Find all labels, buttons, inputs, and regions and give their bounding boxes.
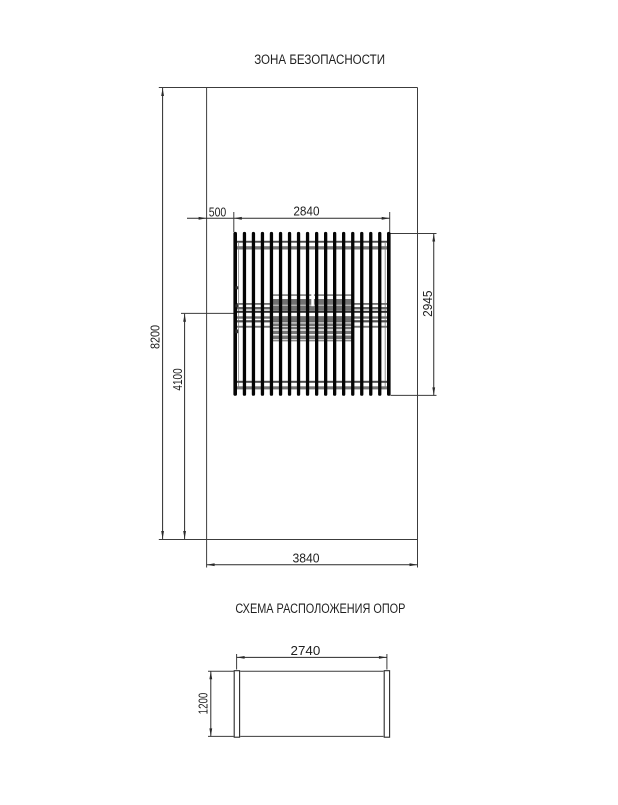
svg-text:СХЕМА РАСПОЛОЖЕНИЯ ОПОР: СХЕМА РАСПОЛОЖЕНИЯ ОПОР [235,601,405,617]
svg-text:2840: 2840 [293,204,319,219]
svg-text:500: 500 [209,204,227,219]
svg-text:8200: 8200 [147,325,162,349]
svg-text:2740: 2740 [291,643,321,658]
svg-text:2945: 2945 [420,290,435,316]
svg-text:ЗОНА БЕЗОПАСНОСТИ: ЗОНА БЕЗОПАСНОСТИ [254,51,385,67]
svg-text:4100: 4100 [171,368,186,390]
svg-text:1200: 1200 [197,693,211,715]
svg-text:3840: 3840 [292,551,319,565]
